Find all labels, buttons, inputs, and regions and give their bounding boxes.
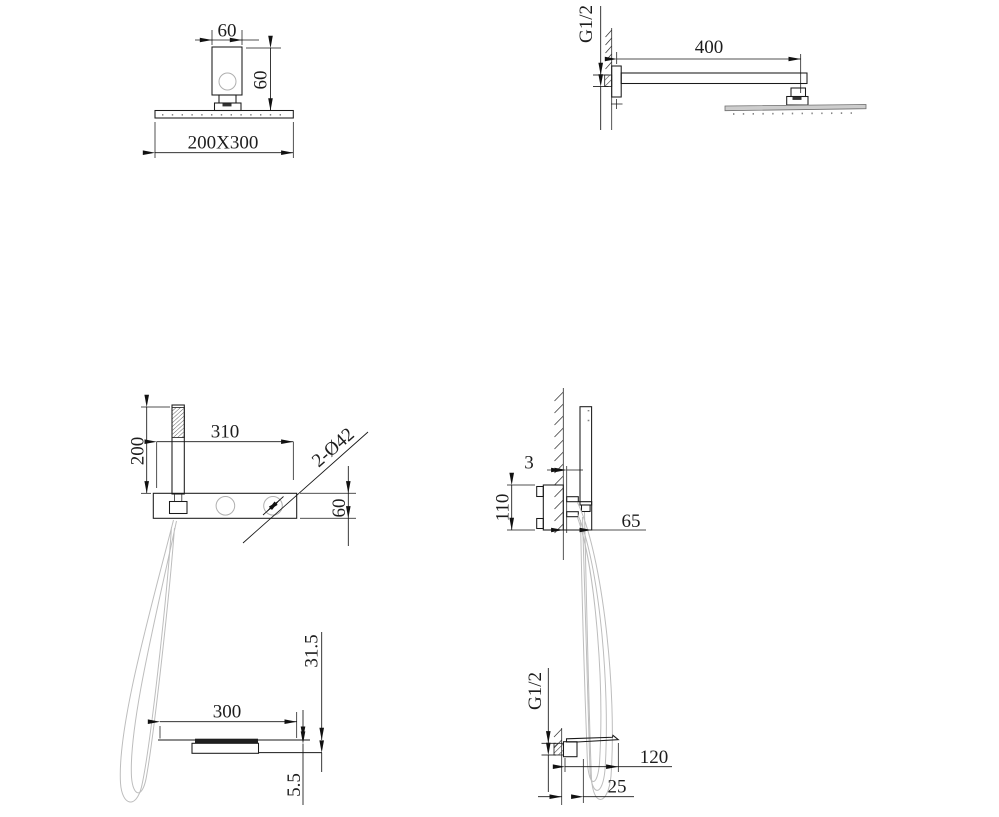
dim-shelf-depth: 65 bbox=[544, 511, 646, 532]
shower-arm bbox=[621, 73, 807, 84]
wall-flange bbox=[612, 66, 622, 97]
dim-bracket-width: 60 bbox=[195, 21, 259, 46]
wand-spray-head bbox=[172, 408, 184, 438]
wall-thread-nipple bbox=[605, 75, 612, 87]
shelf-side-outline bbox=[563, 502, 591, 530]
valve-tab-bottom bbox=[537, 519, 544, 529]
shower-head-plate bbox=[155, 111, 293, 119]
dim-text-knob-holes: 2-Ø42 bbox=[308, 424, 358, 472]
dim-text-shelf-depth: 65 bbox=[622, 511, 641, 532]
dim-bracket-height: 60 bbox=[246, 48, 281, 111]
dim-text-spout-thread: G1/2 bbox=[525, 672, 546, 710]
dim-text-bracket-width: 60 bbox=[218, 21, 237, 42]
outlet-stub-bottom bbox=[567, 512, 579, 517]
valve-tab-top bbox=[537, 487, 544, 497]
dim-text-spout-drop: 31.5 bbox=[302, 634, 323, 667]
dim-text-head-face: 200X300 bbox=[188, 133, 259, 154]
bracket-neck bbox=[219, 95, 236, 103]
ball-joint bbox=[219, 73, 236, 90]
in-wall-valve bbox=[543, 485, 563, 530]
wall-hatching-side bbox=[555, 392, 564, 533]
dim-spout-plate: 5.5 bbox=[284, 710, 305, 805]
dim-text-arm-length: 400 bbox=[695, 37, 724, 58]
dim-panel-height: 60 bbox=[300, 466, 356, 546]
knob-hole-left bbox=[216, 497, 235, 516]
dim-spout-thread: G1/2 bbox=[525, 668, 556, 792]
dim-text-spout-plate: 5.5 bbox=[284, 773, 305, 797]
dim-text-spout-width: 300 bbox=[213, 702, 242, 723]
dim-text-thread: G1/2 bbox=[576, 5, 597, 43]
dim-head-face: 200X300 bbox=[155, 122, 293, 158]
view-overhead-shower-front: 60 60 200X300 bbox=[155, 21, 293, 159]
dim-wall-thread: G1/2 bbox=[576, 5, 609, 130]
view-shower-panel-front: 200 310 2-Ø42 60 3 bbox=[120, 405, 368, 805]
hand-shower-side bbox=[580, 407, 592, 505]
view-shower-panel-side: 3 110 65 G1/2 bbox=[493, 388, 673, 805]
shower-system-dimension-drawing: 60 60 200X300 bbox=[0, 0, 999, 817]
dim-text-handshower-height: 200 bbox=[128, 437, 149, 466]
wand-hose-connector bbox=[582, 505, 591, 512]
dim-spout-drop: 31.5 bbox=[302, 632, 323, 772]
dim-text-panel-height: 60 bbox=[329, 499, 350, 518]
dim-valve-height: 110 bbox=[493, 485, 536, 530]
dim-text-spout-body-depth: 25 bbox=[608, 777, 627, 798]
waterfall-spout-front bbox=[158, 739, 322, 754]
dim-text-bracket-height: 60 bbox=[251, 71, 272, 90]
outlet-stub-top bbox=[567, 497, 579, 502]
shower-head-plate-side bbox=[725, 105, 866, 111]
dim-text-panel-thickness: 3 bbox=[524, 453, 534, 474]
ceiling-bracket bbox=[212, 47, 242, 95]
spout-body-side bbox=[564, 742, 578, 757]
dim-text-valve-height: 110 bbox=[493, 494, 514, 522]
dim-spout-length: 120 bbox=[565, 743, 672, 772]
dim-spout-width: 300 bbox=[160, 702, 297, 739]
base-slot bbox=[223, 103, 232, 106]
spout-thread-nipple bbox=[554, 743, 564, 755]
arm-ball-joint bbox=[791, 88, 806, 97]
dim-text-spout-length: 120 bbox=[640, 747, 669, 768]
spout-plate-side bbox=[567, 735, 619, 742]
hose-nut bbox=[170, 502, 188, 514]
dim-handshower-height: 200 bbox=[128, 407, 171, 493]
hose-loops-side bbox=[578, 503, 613, 800]
dim-panel-thickness: 3 bbox=[524, 453, 583, 474]
dim-arm-length: 400 bbox=[617, 37, 801, 93]
hand-shower-hose bbox=[120, 520, 176, 802]
wall-hatching bbox=[606, 30, 612, 69]
spout-slot bbox=[195, 739, 258, 744]
dim-text-panel-width: 310 bbox=[211, 422, 240, 443]
nozzle-dots-side bbox=[733, 113, 859, 114]
technical-drawing-page: 60 60 200X300 bbox=[0, 0, 999, 817]
dim-spout-body-depth: 25 bbox=[538, 759, 634, 803]
view-overhead-shower-side: G1/2 400 bbox=[576, 5, 866, 130]
spout-body bbox=[192, 743, 259, 753]
